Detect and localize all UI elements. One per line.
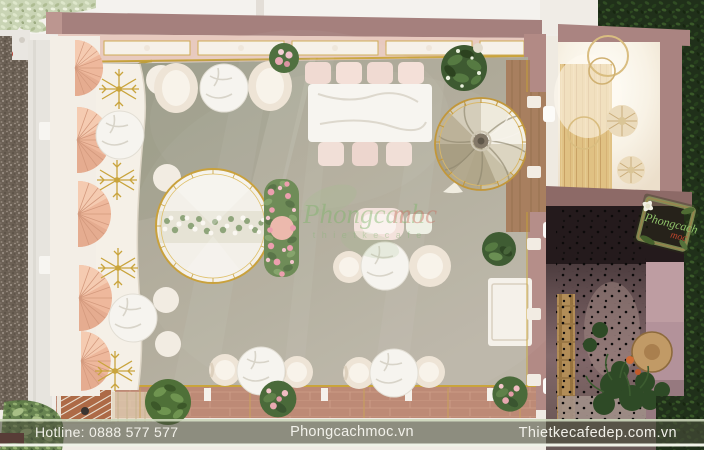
svg-text:Phongcachmoc.vn: Phongcachmoc.vn xyxy=(290,424,414,440)
svg-text:Thietkecafedep.com.vn: Thietkecafedep.com.vn xyxy=(519,425,677,441)
svg-text:moc: moc xyxy=(392,199,437,229)
svg-text:Hotline: 0888 577 577: Hotline: 0888 577 577 xyxy=(35,424,178,440)
svg-text:t h i e t k e c a f e: t h i e t k e c a f e xyxy=(313,230,424,240)
